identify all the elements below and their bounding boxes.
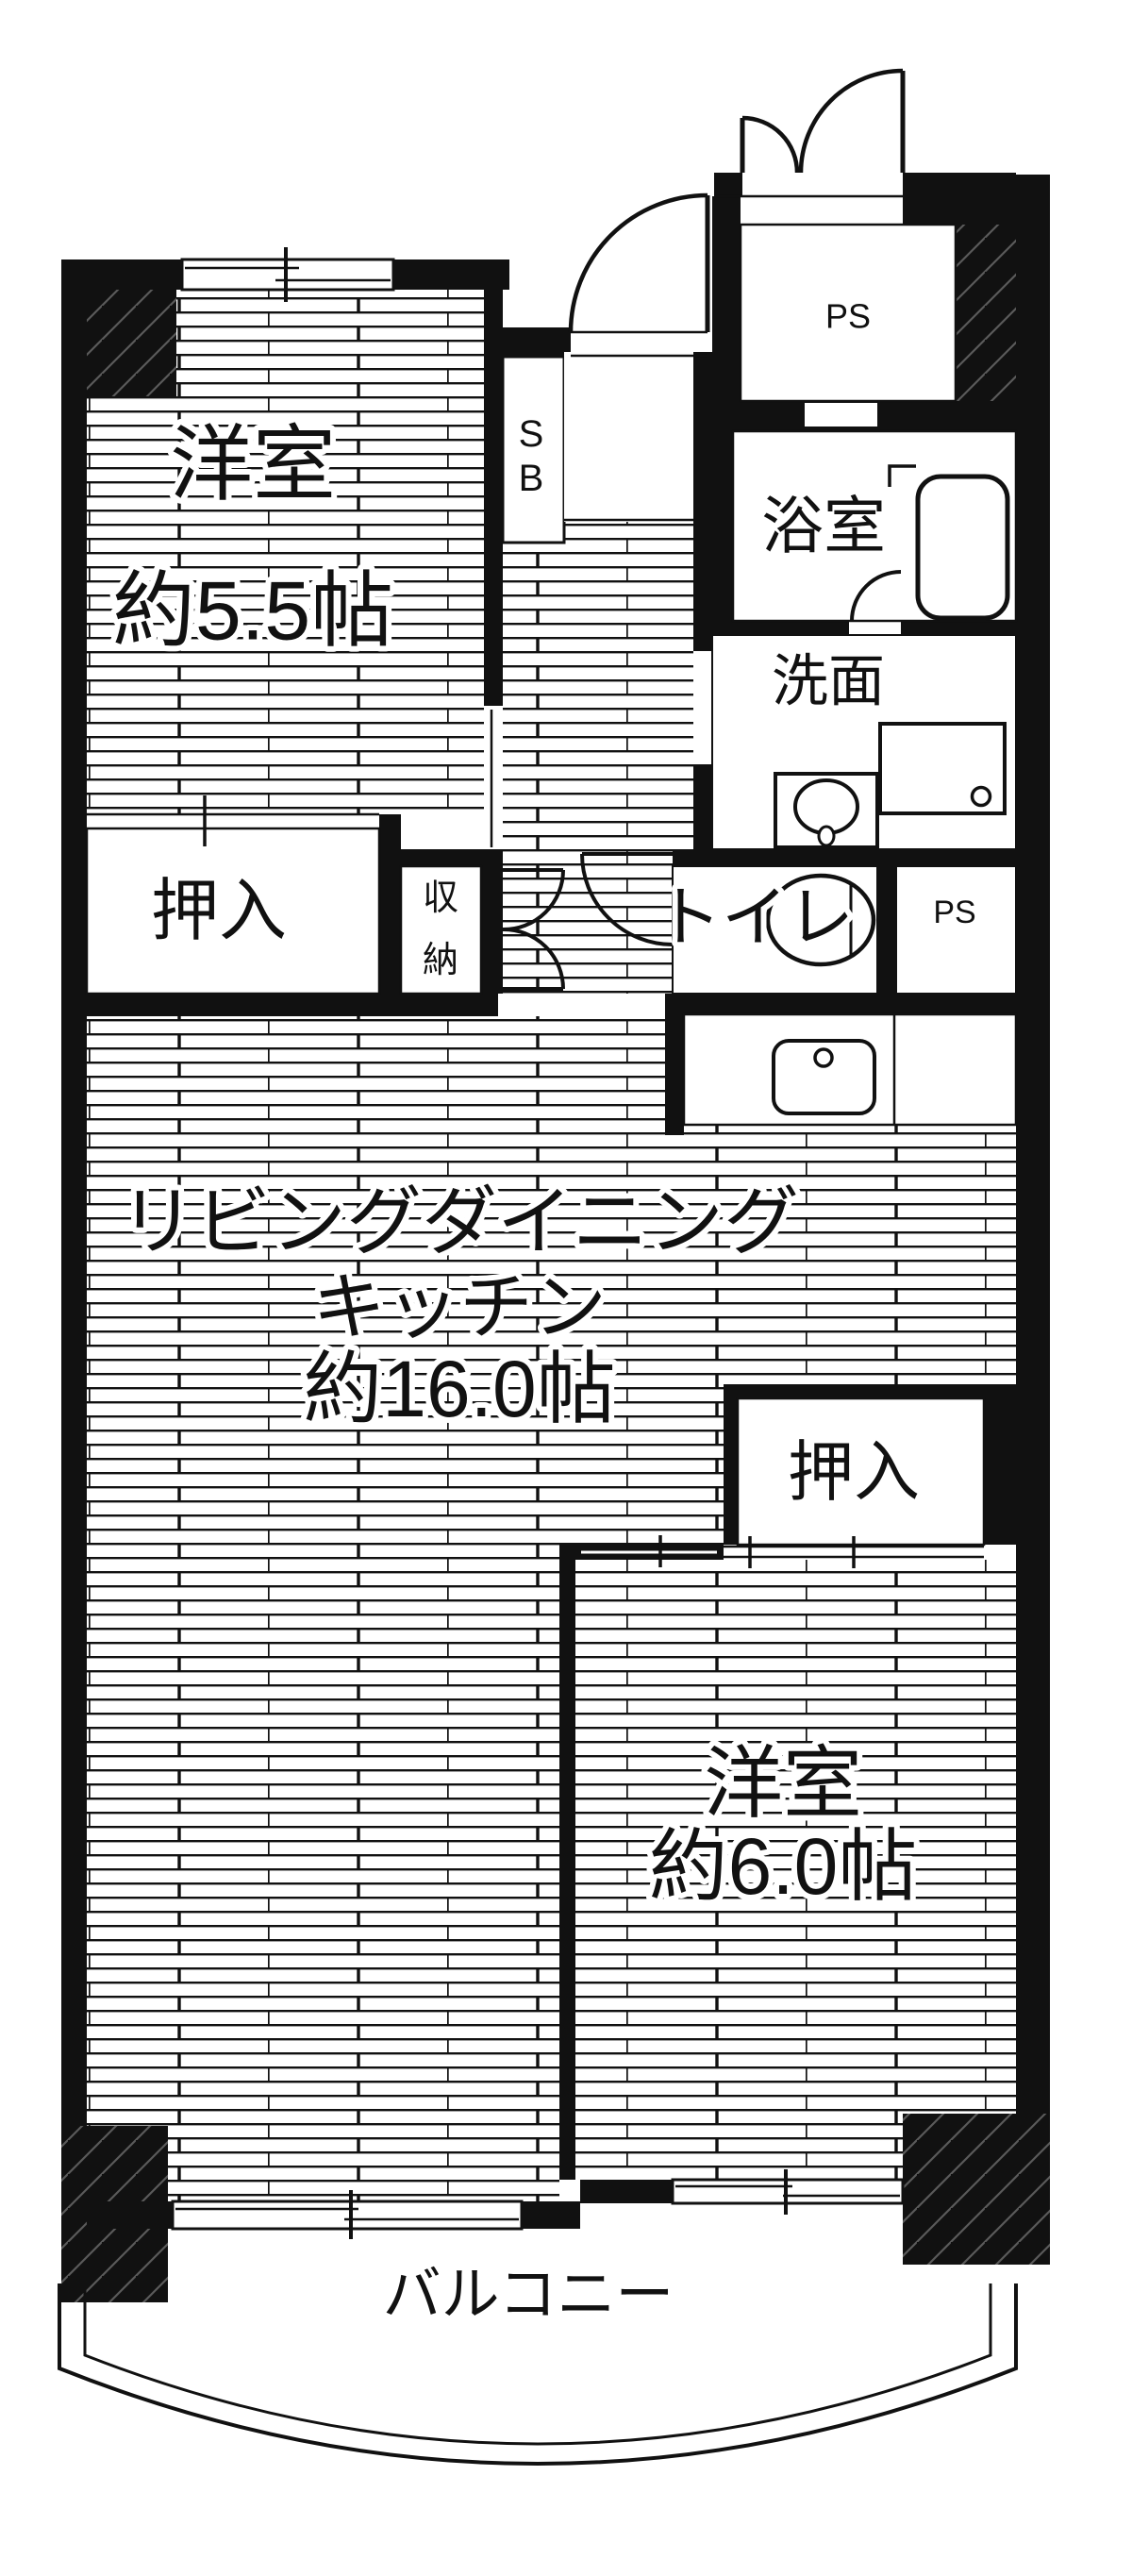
- ps-middle-label: PS: [933, 895, 975, 930]
- closet1-label: 押入: [151, 874, 287, 949]
- wall-pier-ldk-window-left: [87, 2201, 173, 2229]
- shoebox-label-char1: S: [519, 413, 544, 455]
- wall-corner-bottom-right: [903, 2114, 1050, 2265]
- bedroom55-door-opening: [484, 706, 503, 851]
- storage-label-char1: 収: [423, 878, 458, 918]
- wall-entry-top-right: [903, 173, 1016, 196]
- wall-hall-right: [693, 352, 712, 866]
- wall-entry-corner: [903, 196, 1016, 225]
- ldk-label-line3: 約16.0帖: [303, 1345, 616, 1433]
- entry-door-arc-icon: [801, 71, 903, 173]
- wall-closet2-left: [724, 1398, 738, 1545]
- kitchen-faucet-icon: [815, 1049, 832, 1066]
- shoebox-label-char2: B: [519, 458, 544, 499]
- genkan-door-arc-icon: [571, 195, 707, 332]
- wall-ldk-top-left: [61, 994, 498, 1016]
- wall-pier-ldk-window-right: [522, 2201, 580, 2229]
- bathroom-label: 浴室: [761, 491, 886, 560]
- washing-machine-pan-icon: [880, 724, 1005, 813]
- ps-duct-notch: [805, 403, 877, 427]
- genkan-area: [564, 352, 693, 522]
- bathtub-icon: [918, 477, 1007, 618]
- bedroom55-size-label: 約5.5帖: [112, 564, 393, 658]
- washbasin-drain-icon: [819, 827, 834, 845]
- wall-pier-bed60-window-left: [580, 2180, 673, 2203]
- wall-ldk-bedroom60-partition: [559, 1545, 575, 2180]
- washroom-label: 洗面: [772, 650, 885, 713]
- balcony-label: バルコニー: [383, 2263, 674, 2328]
- wall-right: [1016, 175, 1050, 2114]
- ldk-label-line2: キッチン: [312, 1265, 607, 1348]
- floor-plan-drawing: 洋室 約5.5帖 押入 収 納 S B PS 浴室 洗面 トイレ PS リビング…: [0, 0, 1132, 2576]
- wall-closet2-right: [984, 1384, 1016, 1545]
- wall-toilet-ps-divider: [877, 866, 896, 994]
- closet2-label: 押入: [788, 1435, 920, 1509]
- wall-entry-sill-stub: [503, 327, 571, 357]
- floor-ldk-beside-kitchen: [559, 1016, 665, 1135]
- wall-kitchen-left: [665, 1014, 684, 1135]
- washroom-door-opening: [693, 651, 712, 764]
- wall-ps-right: [956, 225, 1016, 401]
- wall-closet2-top: [724, 1384, 984, 1398]
- wall-storage-right: [481, 866, 503, 994]
- wall-entry-top-left: [714, 173, 742, 196]
- bedroom60-name-label: 洋室: [704, 1739, 862, 1828]
- wall-top-mid: [393, 259, 509, 290]
- ps-top-label: PS: [825, 297, 871, 336]
- storage-label-char2: 納: [423, 941, 458, 980]
- toilet-label: トイレ: [656, 880, 854, 954]
- wall-toilet-top: [673, 849, 1016, 866]
- entry-child-door-arc-icon: [742, 118, 797, 173]
- floor-hallway-upper: [503, 519, 693, 852]
- wall-kitchen-top: [665, 994, 1016, 1014]
- wall-left: [61, 290, 87, 2126]
- wall-top-left: [61, 259, 182, 290]
- ldk-label-line1: リビングダイニング: [120, 1180, 799, 1264]
- floor-plan-page: 洋室 約5.5帖 押入 収 納 S B PS 浴室 洗面 トイレ PS リビング…: [0, 0, 1132, 2576]
- bath-door-opening: [849, 621, 901, 635]
- wall-ps-left: [712, 196, 741, 431]
- wall-closet1-storage-divider: [379, 814, 401, 994]
- wall-ps-bottom: [741, 401, 1016, 431]
- wall-bath-left: [712, 431, 733, 621]
- bedroom55-name-label: 洋室: [170, 418, 336, 511]
- bedroom60-size-label: 約6.0帖: [649, 1822, 918, 1911]
